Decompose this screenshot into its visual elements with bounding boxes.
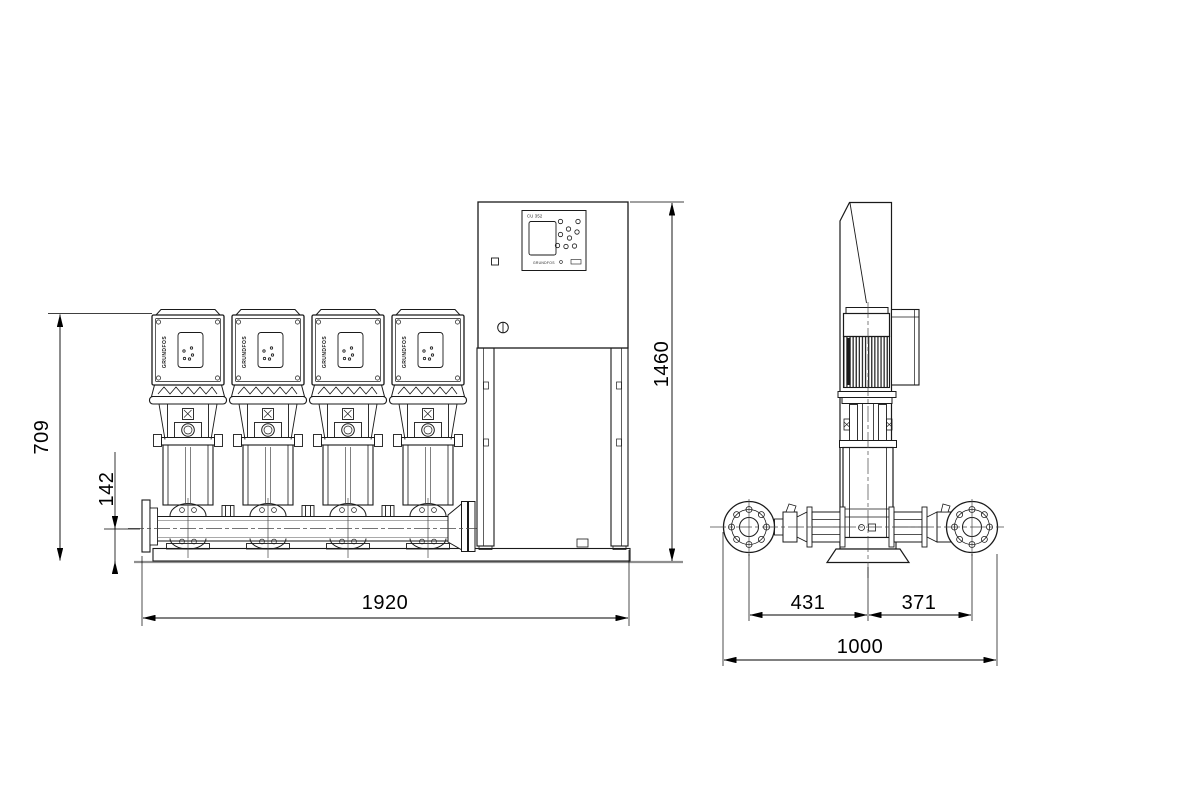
control-cabinet: CU 352 GRUNDFOS: [477, 202, 628, 550]
booster-set-dimensional-drawing: GRUNDFOS: [0, 0, 1200, 800]
dim-1920: 1920: [362, 592, 409, 614]
front-view: CU 352 GRUNDFOS 709 142 1920 1460: [31, 202, 684, 626]
dim-1000: 1000: [837, 636, 884, 658]
frame-support-foot: [577, 539, 588, 547]
side-view: 431 371 1000: [710, 203, 1004, 667]
cabinet-left-leg: [477, 348, 494, 546]
dim-371: 371: [902, 592, 937, 614]
dim-709: 709: [31, 420, 53, 455]
dimensional-drawing-page: GRUNDFOS: [0, 0, 1200, 800]
cabinet-right-leg: [611, 348, 628, 546]
suction-piping: [775, 504, 846, 547]
cu352-panel: CU 352 GRUNDFOS: [522, 211, 586, 271]
manifold-port-stub: [302, 506, 314, 517]
dim-1460: 1460: [651, 341, 673, 388]
base-frame: [153, 549, 630, 562]
manifold-port-stub: [382, 506, 394, 517]
vent-valve-icon: [941, 504, 950, 512]
manifold-port-stub: [222, 506, 234, 517]
manifold-outlet-cone: [448, 504, 462, 551]
terminal-box: [892, 310, 920, 386]
panel-brand-label: GRUNDFOS: [533, 261, 555, 265]
vent-valve-icon: [786, 504, 796, 512]
dim-431: 431: [791, 592, 826, 614]
control-unit-label: CU 352: [527, 214, 543, 219]
manifold-end-flange: [142, 500, 150, 552]
dim-142: 142: [96, 472, 118, 507]
